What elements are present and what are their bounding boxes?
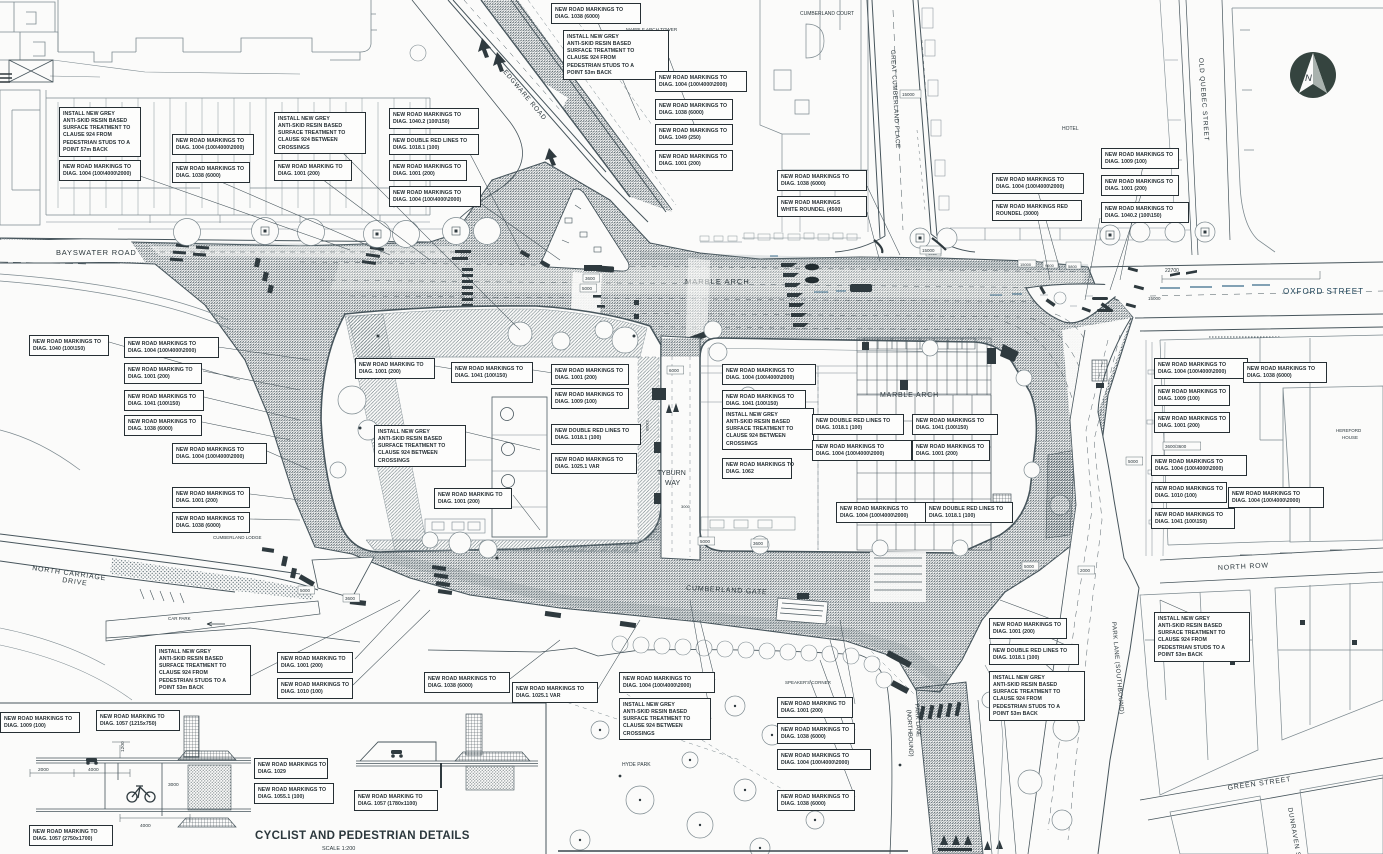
svg-text:15000: 15000 — [902, 92, 915, 97]
svg-text:3000: 3000 — [168, 782, 179, 788]
svg-text:22700: 22700 — [1165, 268, 1179, 274]
svg-text:15000: 15000 — [1148, 296, 1161, 301]
svg-text:HOTEL: HOTEL — [1062, 126, 1079, 132]
svg-text:HYDE PARK: HYDE PARK — [622, 762, 651, 768]
svg-text:3000: 3000 — [681, 504, 691, 509]
svg-text:3600/3600: 3600/3600 — [1165, 444, 1187, 449]
svg-text:3600: 3600 — [753, 541, 764, 546]
svg-text:WAY: WAY — [665, 480, 680, 487]
svg-text:5000: 5000 — [300, 588, 311, 593]
svg-text:3600: 3600 — [345, 596, 356, 601]
svg-text:TYBURN: TYBURN — [657, 470, 686, 477]
svg-text:BAYSWATER ROAD: BAYSWATER ROAD — [56, 248, 137, 257]
svg-text:15000: 15000 — [922, 248, 935, 253]
svg-text:4000: 4000 — [140, 823, 151, 829]
svg-text:MARBLE ARCH: MARBLE ARCH — [880, 392, 939, 399]
svg-text:CUMBERLAND LODGE: CUMBERLAND LODGE — [213, 535, 262, 540]
svg-text:SCALE 1:200: SCALE 1:200 — [322, 846, 355, 852]
svg-text:N: N — [1305, 73, 1312, 84]
svg-text:5000: 5000 — [1024, 564, 1035, 569]
svg-text:OXFORD STREET: OXFORD STREET — [1283, 287, 1364, 296]
svg-text:23000: 23000 — [645, 420, 650, 432]
svg-text:5000: 5000 — [582, 286, 593, 291]
svg-text:SPEAKER'S CORNER: SPEAKER'S CORNER — [785, 680, 832, 685]
svg-text:5000: 5000 — [1128, 459, 1139, 464]
svg-text:6000: 6000 — [669, 368, 680, 373]
svg-text:2000: 2000 — [1080, 568, 1091, 573]
svg-text:CYCLIST AND PEDESTRIAN DETAILS: CYCLIST AND PEDESTRIAN DETAILS — [255, 830, 470, 842]
svg-text:9600: 9600 — [1045, 263, 1055, 268]
svg-text:4000: 4000 — [88, 767, 99, 773]
svg-text:5800: 5800 — [1068, 264, 1078, 269]
svg-text:CUMBERLAND COURT: CUMBERLAND COURT — [800, 11, 854, 17]
svg-text:CAR PARK: CAR PARK — [168, 616, 191, 621]
svg-text:1200: 1200 — [120, 741, 126, 752]
svg-text:2000: 2000 — [38, 767, 49, 773]
svg-text:15000: 15000 — [1020, 262, 1032, 267]
svg-text:3600: 3600 — [585, 276, 596, 281]
svg-text:HOUSE: HOUSE — [1342, 435, 1358, 440]
svg-text:HEREFORD: HEREFORD — [1336, 428, 1362, 433]
svg-text:5000: 5000 — [700, 539, 711, 544]
